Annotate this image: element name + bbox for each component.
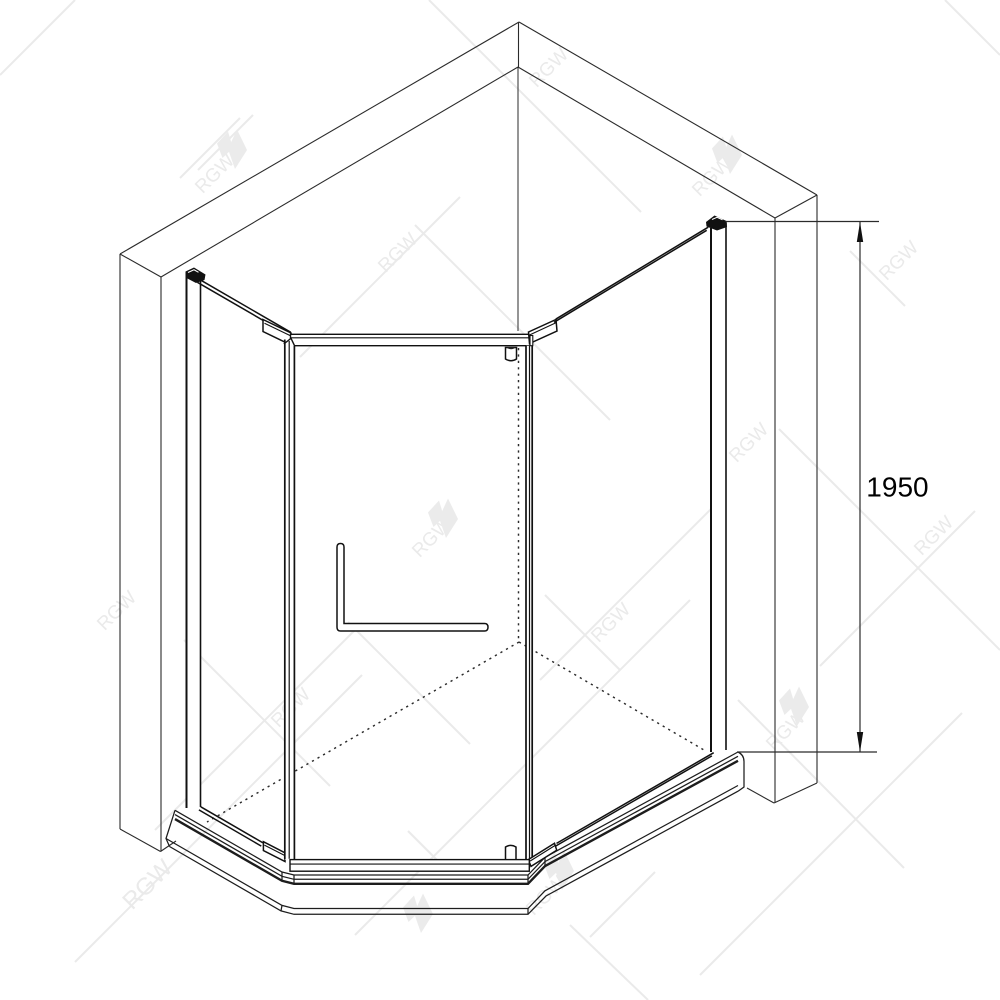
- svg-text:1950: 1950: [866, 472, 928, 503]
- svg-text:RGW: RGW: [725, 419, 773, 467]
- svg-text:RGW: RGW: [117, 854, 178, 915]
- svg-text:RGW: RGW: [875, 237, 923, 285]
- svg-text:RGW: RGW: [93, 587, 141, 635]
- svg-text:RGW: RGW: [587, 599, 635, 647]
- svg-text:RGW: RGW: [374, 229, 422, 277]
